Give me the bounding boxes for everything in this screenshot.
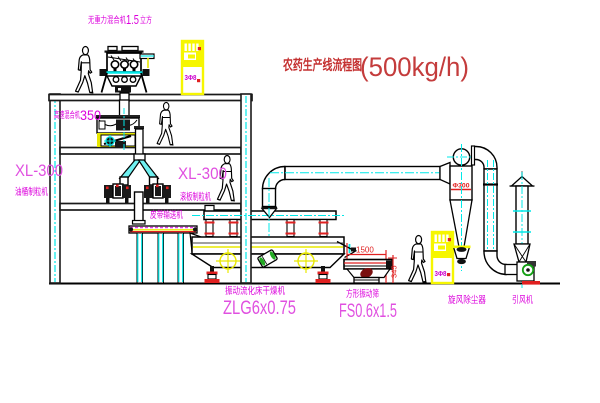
svg-text:ZLG6x0.75: ZLG6x0.75 bbox=[223, 297, 296, 319]
svg-text:旋风除尘器: 旋风除尘器 bbox=[448, 294, 486, 306]
svg-text:立方: 立方 bbox=[140, 14, 152, 25]
svg-text:350: 350 bbox=[80, 108, 101, 123]
svg-text:皮带输送机: 皮带输送机 bbox=[150, 209, 183, 221]
svg-text:油桶制粒机: 油桶制粒机 bbox=[15, 186, 48, 198]
svg-text:XL-300: XL-300 bbox=[178, 164, 227, 183]
svg-text:振动流化床干燥机: 振动流化床干燥机 bbox=[225, 285, 285, 297]
svg-text:1.5: 1.5 bbox=[126, 12, 139, 27]
svg-text:无重力混合机: 无重力混合机 bbox=[88, 14, 126, 25]
svg-text:高速混合机: 高速混合机 bbox=[54, 109, 80, 120]
svg-text:3Φ8: 3Φ8 bbox=[435, 269, 447, 278]
svg-text:1500: 1500 bbox=[356, 246, 374, 255]
svg-text:(500kg/h): (500kg/h) bbox=[360, 52, 469, 82]
svg-text:FS0.6x1.5: FS0.6x1.5 bbox=[339, 300, 397, 322]
svg-text:XL-300: XL-300 bbox=[15, 161, 63, 180]
svg-text:方形振动筛: 方形振动筛 bbox=[346, 288, 379, 300]
svg-text:滚板制粒机: 滚板制粒机 bbox=[180, 191, 211, 203]
svg-text:农药生产线流程图: 农药生产线流程图 bbox=[282, 57, 362, 73]
svg-text:345: 345 bbox=[390, 265, 399, 278]
svg-text:3Φ8: 3Φ8 bbox=[185, 73, 197, 82]
svg-text:引风机: 引风机 bbox=[512, 294, 533, 306]
